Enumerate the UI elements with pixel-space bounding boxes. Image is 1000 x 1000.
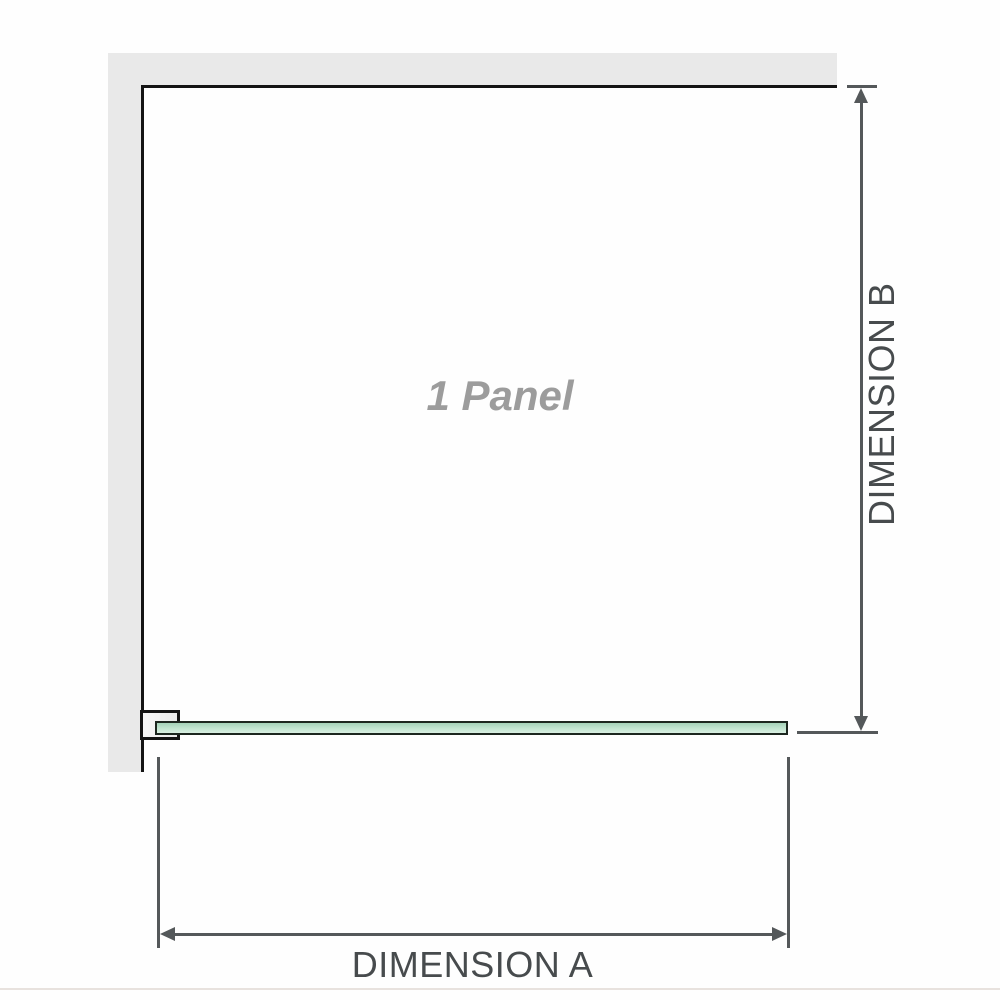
top-wall-edge: [141, 85, 837, 88]
arrow-left-icon: [160, 927, 175, 941]
dimension-b-bottom-tick: [797, 731, 878, 734]
dimension-a-label: DIMENSION A: [300, 944, 645, 986]
dimension-a-line: [171, 933, 776, 936]
glass-panel: [155, 721, 788, 735]
side-wall: [108, 53, 141, 772]
dimension-a-left-extension: [157, 757, 160, 948]
diagram-canvas: 1 Panel DIMENSION B DIMENSION A: [0, 0, 1000, 1000]
dimension-b-label: DIMENSION B: [862, 298, 902, 526]
arrow-up-icon: [854, 88, 868, 103]
arrow-down-icon: [854, 716, 868, 731]
dimension-a-right-extension: [787, 757, 790, 948]
panel-count-label: 1 Panel: [380, 372, 620, 420]
arrow-right-icon: [772, 927, 787, 941]
side-wall-edge: [141, 85, 144, 772]
top-wall: [108, 53, 837, 85]
page-divider: [0, 988, 1000, 990]
